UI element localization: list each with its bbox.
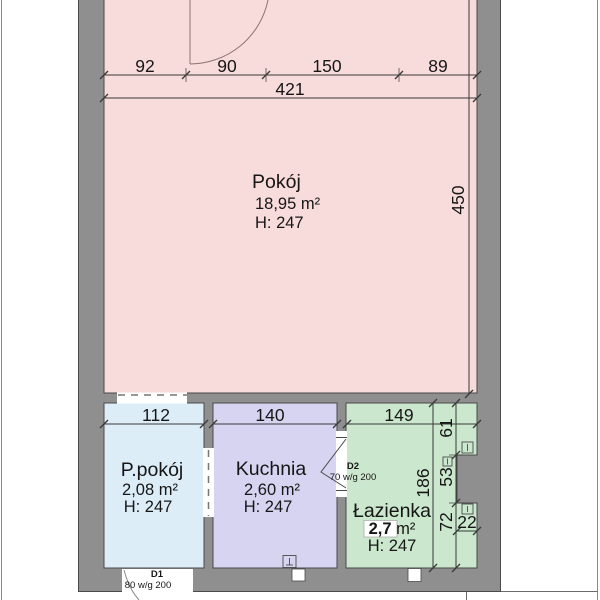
dim-bath-total: 186 [413,468,433,497]
door-d1-spec: 80 w/g 200 [125,580,171,591]
room-name-pokoj: Pokój [252,171,301,193]
room-h-lazienka: H: 247 [368,537,417,555]
floor-plan-canvas: 92 90 150 89 421 450 112 140 149 61 53 7… [0,0,600,600]
room-h-kuchnia: H: 247 [244,498,293,516]
dim-ppokoj-width: 112 [142,405,170,425]
room-area-lazienka: 2,7 m² [369,520,416,538]
door-d2-spec: 70 w/g 200 [330,472,376,483]
dim-total-width: 421 [275,79,304,99]
room-area-pokoj: 18,95 m² [255,195,321,213]
room-h-ppokoj: H: 247 [124,498,173,516]
room-area-unit-lazienka: m² [392,520,416,538]
room-name-lazienka: Łazienka [353,500,431,522]
dim-lazienka-width: 149 [384,405,413,425]
dim-bath-a: 61 [436,418,456,437]
room-name-ppokoj: P.pokój [121,459,184,481]
room-area-ppokoj: 2,08 m² [122,481,178,499]
room-area-value-lazienka: 2,7 [369,520,392,538]
wall-vent-kuchnia [292,569,305,581]
floor-plan: 92 90 150 89 421 450 112 140 149 61 53 7… [0,0,600,600]
door-d1-label: D1 [151,569,164,580]
room-name-kuchnia: Kuchnia [236,458,307,480]
dim-seg3: 150 [312,56,341,76]
opening-pokoj-ppokoj [117,393,187,404]
dim-seg4: 89 [428,56,447,76]
dim-room-height: 450 [448,185,468,214]
room-h-pokoj: H: 247 [255,214,304,232]
title-block-frame [467,592,598,600]
dim-bath-c: 72 [436,512,456,531]
dim-bath-recess: 22 [457,512,476,532]
dim-kuchnia-width: 140 [255,405,284,425]
dim-bath-b: 53 [436,467,456,486]
dim-seg2: 90 [217,56,237,76]
door-d2-label: D2 [347,461,359,472]
room-area-kuchnia: 2,60 m² [244,481,300,499]
wall-vent-lazienka [408,569,421,582]
dim-seg1: 92 [135,56,154,76]
